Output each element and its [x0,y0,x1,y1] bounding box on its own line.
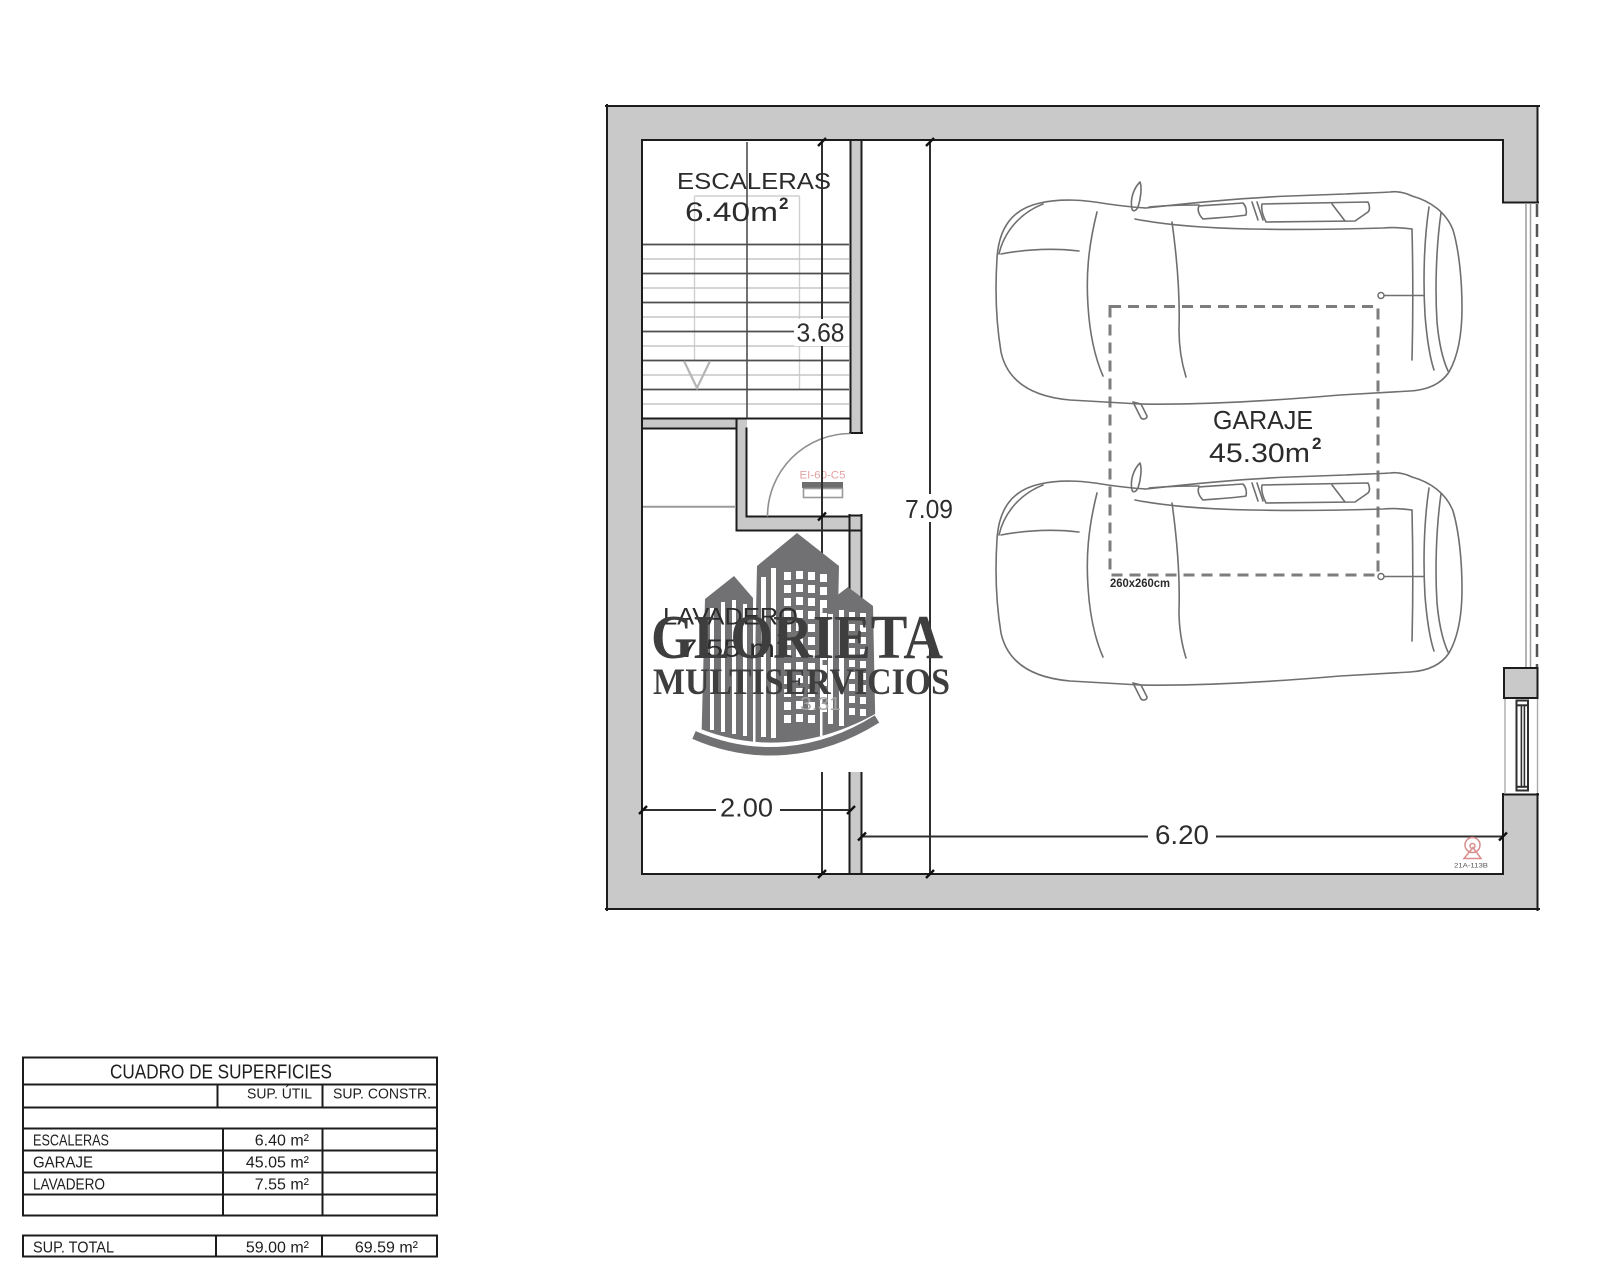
svg-text:59.00 m²: 59.00 m² [246,1240,310,1257]
svg-text:ESCALERAS: ESCALERAS [33,1133,109,1150]
svg-text:6.40m: 6.40m [685,197,778,227]
svg-text:ESCALERAS: ESCALERAS [677,168,831,194]
svg-text:7.55 m²: 7.55 m² [255,1177,310,1194]
svg-text:3.68: 3.68 [797,318,845,348]
svg-text:260x260cm: 260x260cm [1110,578,1170,590]
svg-text:6.40 m²: 6.40 m² [255,1133,310,1150]
svg-text:SUP. TOTAL: SUP. TOTAL [33,1240,114,1257]
svg-text:6.20: 6.20 [1155,820,1209,850]
svg-text:SUP. CONSTR.: SUP. CONSTR. [333,1086,431,1103]
svg-text:2.00: 2.00 [720,793,773,823]
svg-text:69.59 m²: 69.59 m² [355,1240,419,1257]
svg-text:MULTISERVICIOS: MULTISERVICIOS [653,662,950,703]
svg-text:SUP. ÚTIL: SUP. ÚTIL [247,1086,312,1103]
svg-text:GARAJE: GARAJE [33,1155,93,1172]
svg-text:GARAJE: GARAJE [1213,405,1313,435]
svg-text:2: 2 [1312,434,1321,453]
svg-text:CUADRO DE SUPERFICIES: CUADRO DE SUPERFICIES [110,1062,332,1084]
svg-text:7.09: 7.09 [905,494,953,524]
svg-text:45.05 m²: 45.05 m² [246,1155,310,1172]
svg-text:45.30m: 45.30m [1209,438,1310,468]
svg-text:21A-113B: 21A-113B [1454,863,1489,870]
svg-text:LAVADERO: LAVADERO [33,1177,105,1194]
svg-text:2: 2 [779,194,788,213]
